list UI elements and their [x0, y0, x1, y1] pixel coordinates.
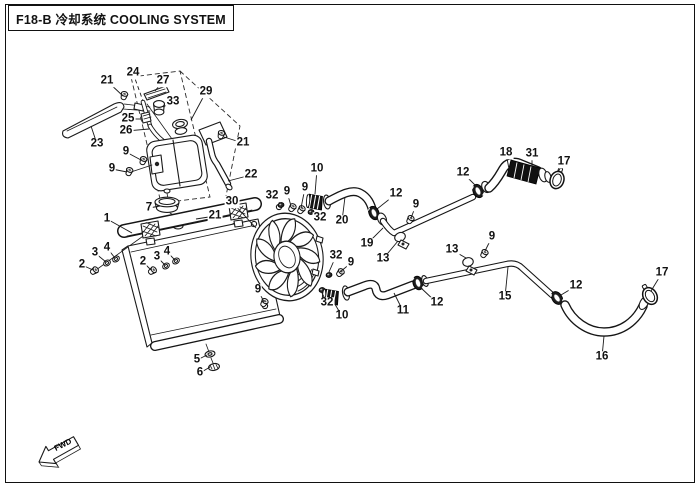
callout-label-15: 15 — [498, 291, 513, 303]
callout-label-9: 9 — [412, 199, 420, 211]
callout-label-32: 32 — [313, 212, 328, 224]
callout-label-25: 25 — [121, 113, 136, 125]
callout-label-9: 9 — [301, 182, 309, 194]
radiator — [89, 203, 280, 371]
callout-label-29: 29 — [199, 86, 214, 98]
callout-label-12: 12 — [569, 280, 584, 292]
callout-label-20: 20 — [335, 215, 350, 227]
callout-label-12: 12 — [456, 167, 471, 179]
callout-label-17: 17 — [655, 267, 670, 279]
callout-label-6: 6 — [196, 367, 204, 379]
callout-label-11: 11 — [396, 305, 410, 317]
callout-label-19: 19 — [360, 238, 375, 250]
callout-label-21: 21 — [100, 75, 115, 87]
callout-label-26: 26 — [119, 125, 134, 137]
hose-protector-sleeve — [507, 160, 540, 184]
callout-label-9: 9 — [488, 231, 496, 243]
reservoir-tank — [125, 134, 209, 199]
callout-label-21: 21 — [208, 210, 223, 222]
callout-label-10: 10 — [335, 310, 350, 322]
callout-label-4: 4 — [103, 242, 111, 254]
callout-label-30: 30 — [225, 196, 240, 208]
callout-label-12: 12 — [430, 297, 445, 309]
callout-label-4: 4 — [163, 246, 171, 258]
callout-label-13: 13 — [445, 244, 460, 256]
callout-label-10: 10 — [310, 163, 325, 175]
callout-label-17: 17 — [557, 156, 572, 168]
callout-label-9: 9 — [347, 257, 355, 269]
callout-label-32: 32 — [329, 250, 344, 262]
callout-label-5: 5 — [193, 354, 201, 366]
upper-hose-route — [306, 160, 567, 249]
overflow-tube — [63, 103, 150, 138]
callout-label-1: 1 — [103, 213, 111, 225]
callout-label-12: 12 — [389, 188, 404, 200]
parts-diagram-page: F18-B 冷却系统 COOLING SYSTEM — [0, 0, 700, 487]
callout-label-16: 16 — [595, 351, 610, 363]
callout-label-13: 13 — [376, 253, 391, 265]
callout-label-3: 3 — [153, 251, 161, 263]
fwd-arrow: FWD — [39, 437, 81, 468]
callout-label-31: 31 — [525, 148, 540, 160]
callout-label-23: 23 — [90, 138, 105, 150]
callout-label-9: 9 — [283, 186, 291, 198]
callout-label-32: 32 — [265, 190, 280, 202]
callout-label-9: 9 — [108, 163, 116, 175]
callout-label-22: 22 — [244, 169, 259, 181]
callout-label-24: 24 — [126, 67, 141, 79]
lower-hose-route — [322, 249, 660, 332]
callout-label-27: 27 — [156, 75, 171, 87]
callout-label-3: 3 — [91, 247, 99, 259]
callout-label-21: 21 — [236, 137, 251, 149]
callout-label-9: 9 — [122, 146, 130, 158]
callout-label-33: 33 — [166, 96, 181, 108]
callout-label-2: 2 — [139, 256, 147, 268]
callout-label-7: 7 — [145, 202, 153, 214]
callout-label-32: 32 — [320, 297, 335, 309]
callout-label-18: 18 — [499, 147, 514, 159]
callout-label-9: 9 — [254, 284, 262, 296]
callout-label-2: 2 — [78, 259, 86, 271]
